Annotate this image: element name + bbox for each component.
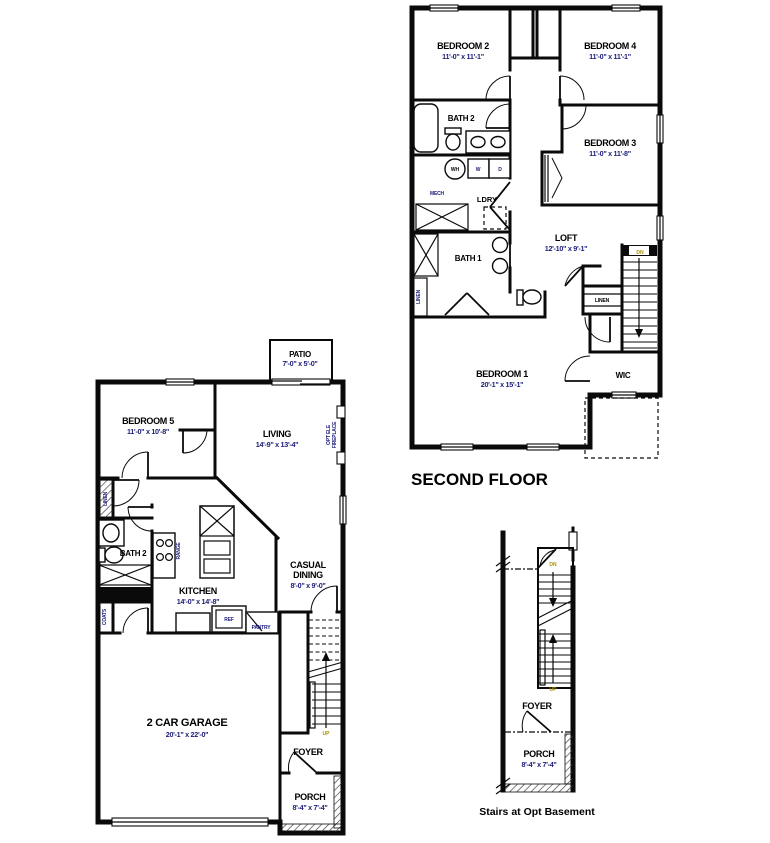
- sf-loft-dims: 12'-10" x 9'-1": [545, 244, 588, 253]
- ff-bath2-label: BATH 2: [120, 549, 147, 558]
- ff-bedroom5-name: BEDROOM 5: [122, 416, 174, 426]
- sf-opt-extension: [585, 398, 658, 458]
- ff-living-dims: 14'-9" x 13'-4": [256, 440, 299, 449]
- sink-icon: [491, 137, 505, 148]
- sf-bedroom3-dims: 11'-0" x 11'-8": [589, 149, 631, 158]
- sf-bedroom1-name: BEDROOM 1: [476, 369, 528, 379]
- toilet-icon: [445, 128, 461, 134]
- sf-linen-stairs-label: LINEN: [595, 298, 610, 304]
- sink-icon: [493, 259, 508, 274]
- ff-kitchen-dims: 14'-0" x 14'-8": [177, 597, 220, 606]
- sd-labels: FOYER PORCH 8'-4" x 7'-4" Stairs at Opt …: [479, 701, 595, 818]
- ff-labels: PATIO 7'-0" x 5'-0" BEDROOM 5 11'-0" x 1…: [102, 350, 338, 812]
- ff-stairs-up-label: UP: [323, 731, 331, 737]
- sf-bedroom3-name: BEDROOM 3: [584, 138, 636, 148]
- second-floor-plan: DN: [411, 5, 663, 489]
- sf-windows: [430, 5, 663, 450]
- sf-bedroom2-dims: 11'-0" x 11'-1": [442, 52, 484, 61]
- floorplan-canvas: DN: [0, 0, 770, 843]
- ff-dining-dims: 8'-0" x 9'-0": [290, 581, 325, 590]
- sd-foyer-label: FOYER: [522, 701, 552, 711]
- sd-up-label: UP: [550, 687, 558, 693]
- ff-bedroom5-dims: 11'-0" x 10'-8": [127, 427, 169, 436]
- ff-fireplace-line2: FIREPLACE: [332, 421, 338, 448]
- sf-dryer-label: D: [498, 167, 502, 173]
- stairs-detail-plan: DN UP FOYER PORCH 8'-4" x 7'-4" Stairs a…: [479, 528, 595, 818]
- sf-loft-name: LOFT: [555, 233, 578, 243]
- toilet-icon: [517, 290, 523, 305]
- ff-stairs: UP: [308, 620, 343, 737]
- sf-stairs: DN: [622, 245, 657, 348]
- ff-coats-label: COATS: [102, 608, 108, 625]
- ff-patio-dims: 7'-0" x 5'-0": [282, 359, 317, 368]
- sf-stairs-dn-label: DN: [636, 250, 644, 256]
- ff-living-name: LIVING: [263, 429, 292, 439]
- sf-wic-label: WIC: [616, 371, 631, 380]
- sd-stairs: DN UP: [538, 548, 573, 693]
- sf-outer-walls: [412, 8, 660, 447]
- toilet-icon: [99, 548, 105, 562]
- ldry-dashed-icon: [484, 207, 506, 229]
- ff-tub-surround: [98, 587, 152, 602]
- sf-ldry-label: LDRY: [477, 195, 497, 204]
- sd-dn-label: DN: [549, 562, 557, 568]
- sink-icon: [471, 137, 485, 148]
- ff-linen-label: LINEN: [103, 491, 109, 506]
- sf-bed3-closet: [545, 155, 562, 202]
- ff-range-label: RANGE: [176, 542, 182, 560]
- first-floor-plan: UP PATIO 7'-0" x 5'-0" B: [98, 340, 346, 833]
- sf-bedroom2-name: BEDROOM 2: [437, 41, 489, 51]
- sf-title: SECOND FLOOR: [411, 470, 548, 489]
- ff-kitchen-name: KITCHEN: [179, 586, 217, 596]
- sf-wh-label: WH: [451, 167, 460, 173]
- counter-icon: [176, 613, 210, 632]
- sf-washer-label: W: [476, 167, 481, 173]
- ff-bath2-fixtures: [98, 520, 152, 602]
- island-icon: [200, 506, 234, 578]
- ff-dining-line2: DINING: [293, 570, 323, 580]
- ff-patio-name: PATIO: [289, 350, 311, 359]
- sf-mech-label: MECH: [430, 191, 445, 197]
- ff-kitchen-fixtures: [153, 506, 278, 633]
- sf-bedroom4-name: BEDROOM 4: [584, 41, 636, 51]
- ff-porch-dims: 8'-4" x 7'-4": [292, 803, 327, 812]
- ff-pantry-label: PANTRY: [252, 625, 272, 631]
- sf-labels: BEDROOM 2 11'-0" x 11'-1" BEDROOM 4 11'-…: [411, 41, 636, 489]
- sd-porch-dims: 8'-4" x 7'-4": [521, 760, 556, 769]
- sf-bedroom4-dims: 11'-0" x 11'-1": [589, 52, 631, 61]
- sf-bath2-label: BATH 2: [448, 114, 475, 123]
- sf-linen-vertical-label: LINEN: [416, 289, 422, 304]
- ff-garage-name: 2 CAR GARAGE: [147, 717, 228, 729]
- sf-bath1-label: BATH 1: [455, 254, 482, 263]
- ff-porch-name: PORCH: [294, 792, 325, 802]
- ff-dining-line1: CASUAL: [290, 560, 327, 570]
- sink-icon: [103, 524, 119, 542]
- ff-foyer-label: FOYER: [293, 747, 323, 757]
- ff-garage-dims: 20'-1" x 22'-0": [166, 730, 209, 739]
- sd-porch-name: PORCH: [523, 749, 554, 759]
- ff-ref-label: REF: [224, 617, 234, 623]
- sd-caption: Stairs at Opt Basement: [479, 806, 595, 818]
- floorplan-sheet: DN: [0, 0, 770, 843]
- sf-bedroom1-dims: 20'-1" x 15'-1": [481, 380, 524, 389]
- tub-icon: [414, 104, 438, 152]
